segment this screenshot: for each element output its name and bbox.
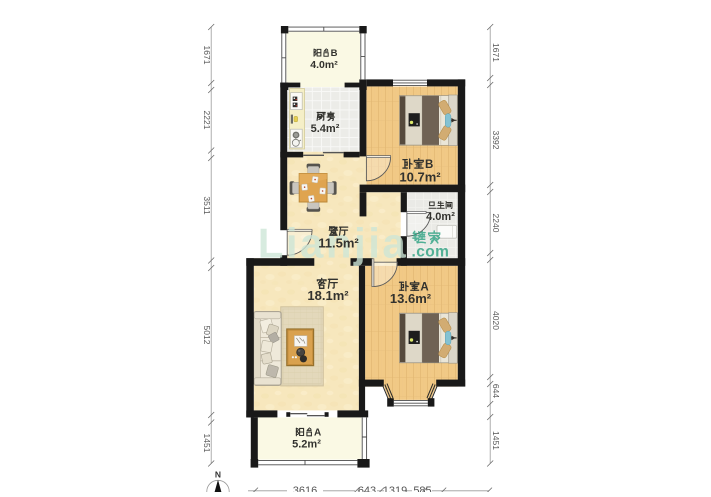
- svg-text:1451: 1451: [491, 431, 501, 450]
- svg-text:4.0m²: 4.0m²: [310, 59, 338, 71]
- svg-text:13.6m²: 13.6m²: [390, 291, 432, 306]
- svg-text:10.7m²: 10.7m²: [399, 169, 441, 184]
- svg-text:N: N: [215, 470, 221, 480]
- svg-text:5012: 5012: [202, 326, 212, 345]
- svg-text:2240: 2240: [491, 214, 501, 233]
- svg-text:3392: 3392: [491, 131, 501, 150]
- svg-text:644: 644: [491, 384, 501, 398]
- svg-text:585: 585: [413, 485, 431, 492]
- svg-text:18.1m²: 18.1m²: [307, 288, 349, 303]
- svg-text:3511: 3511: [202, 196, 212, 215]
- svg-text:A: A: [314, 428, 321, 439]
- svg-text:11.5m²: 11.5m²: [318, 236, 359, 251]
- svg-text:3616: 3616: [293, 485, 317, 492]
- svg-text:4020: 4020: [491, 311, 501, 330]
- svg-text:.com: .com: [412, 244, 450, 261]
- svg-text:1451: 1451: [202, 434, 212, 453]
- svg-text:4.0m²: 4.0m²: [426, 211, 455, 223]
- svg-text:2221: 2221: [202, 111, 212, 130]
- svg-text:5.4m²: 5.4m²: [311, 123, 340, 135]
- svg-text:1671: 1671: [202, 46, 212, 65]
- svg-text:1319: 1319: [383, 485, 407, 492]
- svg-text:643: 643: [358, 485, 376, 492]
- svg-text:B: B: [331, 48, 338, 59]
- svg-text:5.2m²: 5.2m²: [292, 439, 321, 451]
- svg-text:1671: 1671: [491, 43, 501, 62]
